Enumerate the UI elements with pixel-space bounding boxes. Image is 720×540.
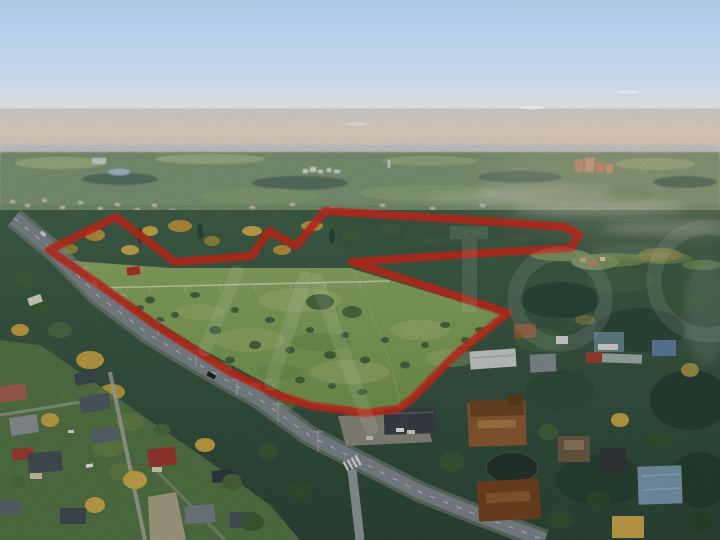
cloud (617, 90, 639, 93)
aerial-photo (0, 0, 720, 540)
cloud (519, 106, 545, 110)
cloud (347, 122, 367, 125)
grain-overlay (0, 148, 720, 540)
